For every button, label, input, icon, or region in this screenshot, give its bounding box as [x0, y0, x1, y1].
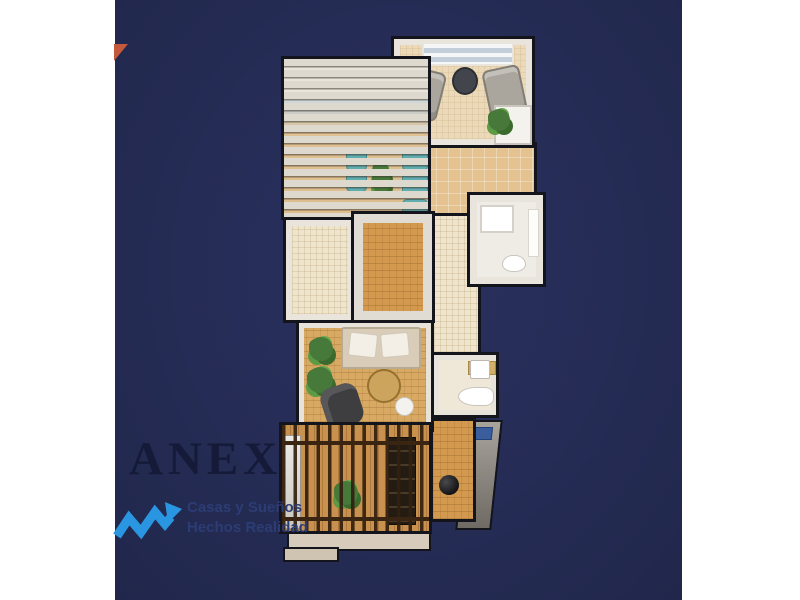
bed: [341, 327, 421, 369]
page: ANEX Casas y Sueños Hechos Realidad: [0, 0, 800, 600]
lounger: [402, 173, 428, 197]
room-stairwell: [351, 211, 435, 323]
tagline-line2: Hechos Realidad: [187, 518, 308, 538]
room-pergola-terrace: [281, 56, 431, 220]
tagline-line1: Casas y Sueños: [187, 498, 308, 518]
corner-triangle-icon: [114, 44, 128, 61]
pillow: [348, 332, 378, 359]
flower-pot: [439, 475, 459, 495]
shower: [480, 205, 514, 233]
brand-name: ANEX: [129, 432, 282, 486]
lounger: [402, 147, 428, 171]
plant: [372, 163, 390, 193]
plant: [309, 337, 333, 361]
sink: [470, 360, 490, 379]
lounger: [346, 149, 367, 171]
plant: [488, 109, 510, 131]
round-table: [367, 369, 401, 403]
vanity: [528, 209, 539, 257]
room-parquet-rear: [430, 418, 476, 522]
logo-zigzag-icon: [111, 496, 183, 542]
stool: [395, 397, 414, 416]
coffee-table: [452, 67, 478, 95]
toilet: [502, 255, 526, 272]
window-bay: [422, 42, 514, 66]
brand-tagline: Casas y Sueños Hechos Realidad: [187, 498, 308, 538]
room-bathroom-main: [467, 192, 546, 287]
toilet: [458, 387, 494, 406]
render-canvas: ANEX Casas y Sueños Hechos Realidad: [115, 0, 682, 600]
room-bathroom-guest: [431, 352, 499, 418]
room-closet: [283, 217, 357, 323]
brand-logo: ANEX Casas y Sueños Hechos Realidad: [115, 430, 395, 560]
lounger: [346, 172, 367, 192]
room-bedroom: [296, 320, 434, 432]
pillow: [380, 332, 410, 358]
